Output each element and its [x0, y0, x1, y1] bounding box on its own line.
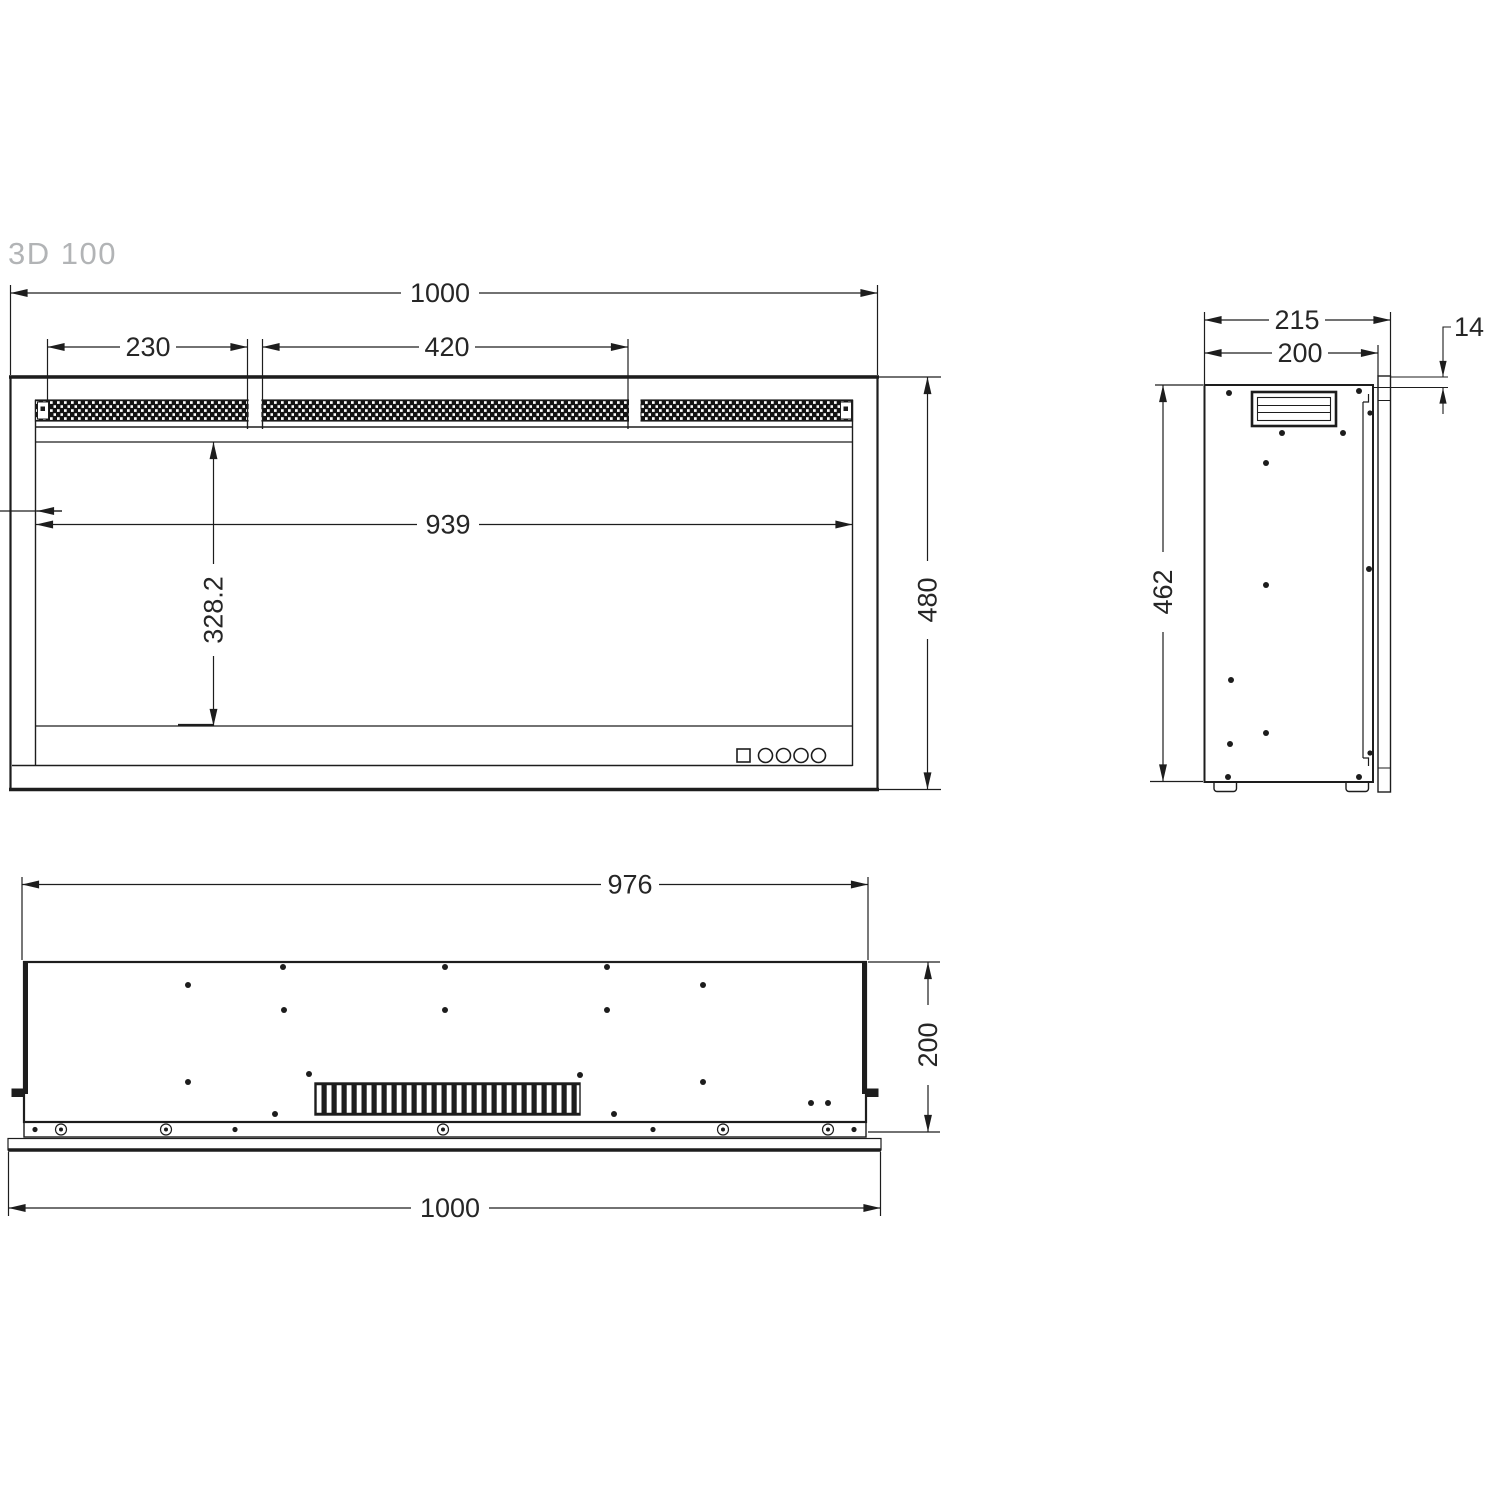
bottom-view: 976	[8, 870, 943, 1224]
svg-text:230: 230	[125, 332, 170, 362]
bottom-rivet-strip	[24, 1122, 866, 1137]
bottom-front-flange	[8, 1139, 881, 1151]
drawing-title: 3D 100	[8, 236, 117, 271]
svg-text:939: 939	[425, 510, 470, 540]
side-feet	[1214, 782, 1369, 792]
dim-side-body-height: 462	[1148, 385, 1203, 782]
control-round-button-icon	[794, 749, 808, 763]
side-screw-holes	[1225, 388, 1373, 780]
svg-text:200: 200	[1277, 338, 1322, 368]
dim-front-glass-height: 328.2	[178, 442, 229, 726]
technical-drawing-page: 3D 100 1000 230 420	[0, 0, 1500, 1500]
front-view: 1000 230 420	[0, 278, 943, 790]
front-outer-frame	[9, 377, 879, 790]
side-vent-slot	[1252, 392, 1336, 426]
side-view: 215 200	[1148, 305, 1484, 792]
dim-bottom-overall-width: 1000	[9, 1152, 881, 1223]
svg-text:462: 462	[1148, 569, 1178, 614]
svg-text:215: 215	[1274, 305, 1319, 335]
rivets	[32, 1124, 856, 1135]
dim-front-inner-width: 939	[36, 510, 853, 540]
grille-end-screw-right	[844, 407, 849, 412]
side-body	[1205, 385, 1374, 782]
side-front-bezel	[1378, 376, 1391, 792]
svg-text:328.2: 328.2	[199, 576, 229, 644]
front-glass-opening	[12, 442, 853, 766]
control-square-button-icon	[737, 749, 750, 762]
dim-side-body-depth: 200	[1205, 338, 1379, 376]
bottom-side-bracket-left	[12, 1089, 25, 1098]
dim-bottom-body-depth: 200	[868, 962, 943, 1132]
svg-text:480: 480	[913, 577, 943, 622]
svg-text:1000: 1000	[420, 1193, 480, 1223]
dim-front-overall-height: 480	[879, 377, 943, 790]
svg-text:976: 976	[607, 870, 652, 900]
bottom-louvre-grille	[315, 1083, 580, 1115]
bottom-side-bracket-right	[866, 1089, 879, 1098]
svg-text:1000: 1000	[410, 278, 470, 308]
dim-bottom-body-width: 976	[22, 870, 868, 961]
svg-text:200: 200	[913, 1022, 943, 1067]
front-top-vent-grille	[36, 399, 853, 430]
control-round-button-icon	[812, 749, 826, 763]
svg-text:14: 14	[1454, 312, 1484, 342]
grille-end-screw-left	[41, 407, 46, 412]
control-round-button-icon	[777, 749, 791, 763]
front-control-buttons	[737, 749, 826, 763]
svg-text:420: 420	[424, 332, 469, 362]
control-round-button-icon	[759, 749, 773, 763]
